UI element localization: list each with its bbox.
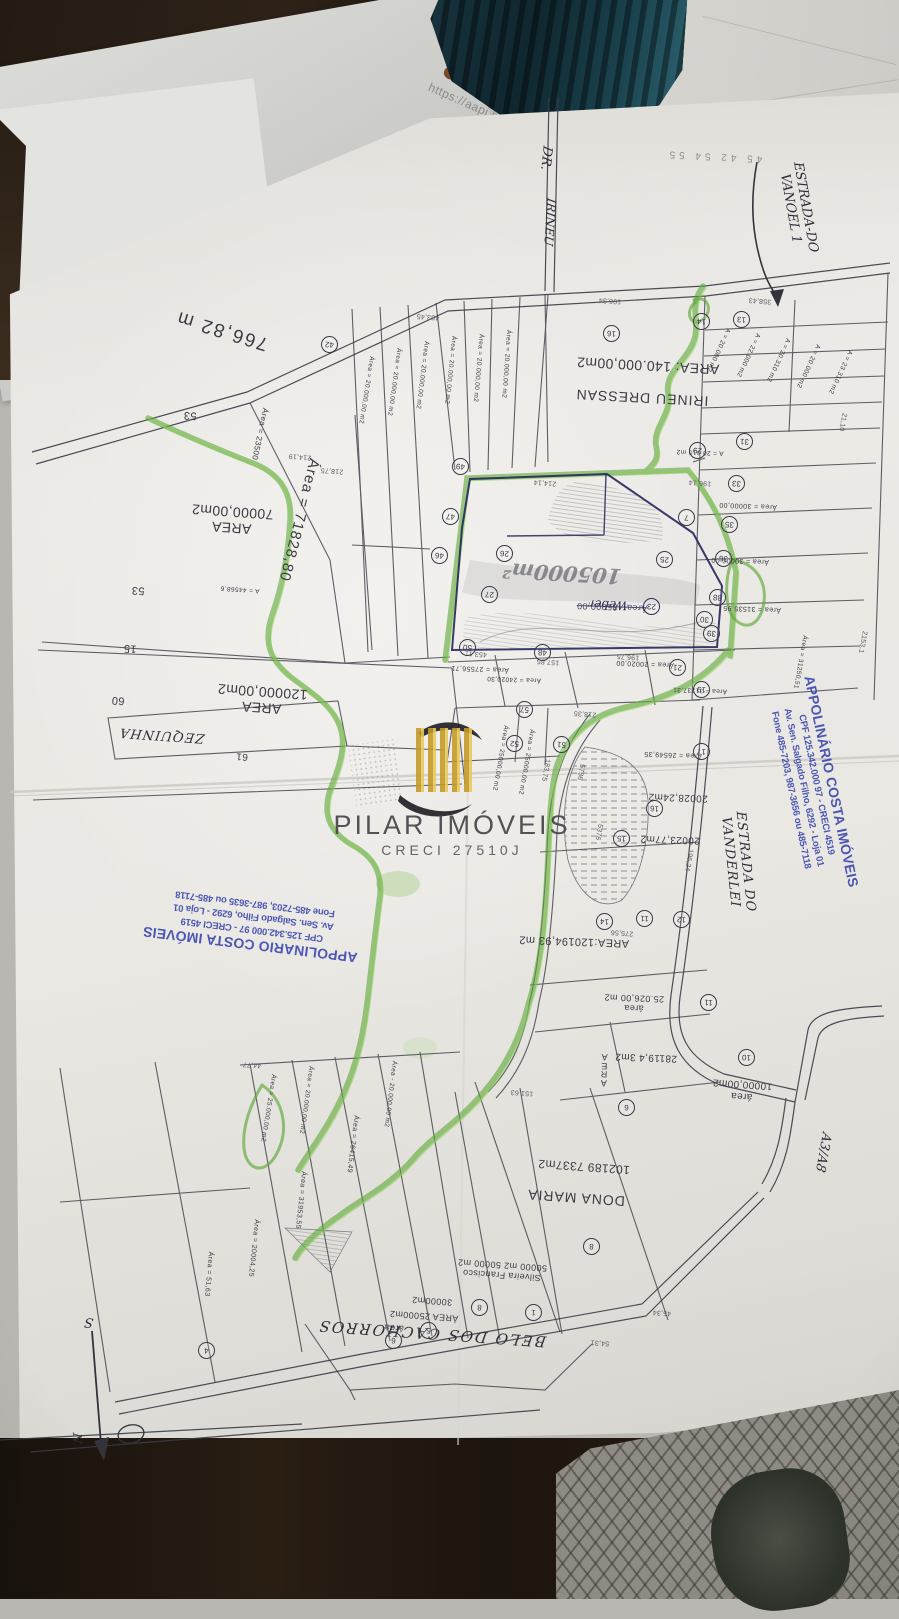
photo-of-plat-map: https://aapj.bb.com [0,0,899,1599]
pen-arrow [753,162,784,307]
pencil-shading [285,482,716,1272]
watermark-swoosh [398,722,482,816]
green-highlighter-path [148,286,736,1258]
map-linework [0,0,899,1599]
paper-creases [10,756,899,1445]
north-arrow [92,1331,146,1461]
green-scribble-knots [244,299,765,1168]
